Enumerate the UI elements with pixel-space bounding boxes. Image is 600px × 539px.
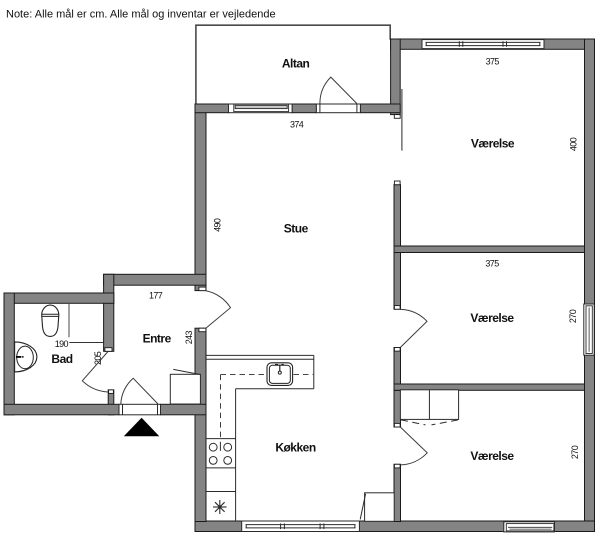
svg-text:190: 190 [55,339,69,349]
svg-text:Værelse: Værelse [470,449,514,463]
svg-text:Entre: Entre [143,332,172,346]
svg-text:270: 270 [568,309,578,323]
svg-text:375: 375 [486,57,500,67]
svg-text:375: 375 [485,259,499,269]
svg-text:270: 270 [570,445,580,459]
svg-text:Værelse: Værelse [470,311,514,325]
svg-text:Note: Alle mål er cm. Alle mål: Note: Alle mål er cm. Alle mål og invent… [6,8,276,20]
svg-text:Altan: Altan [282,56,310,70]
svg-text:400: 400 [569,137,579,151]
svg-text:177: 177 [149,291,163,301]
svg-text:Stue: Stue [284,222,309,236]
svg-text:Køkken: Køkken [275,441,316,455]
svg-text:Værelse: Værelse [471,137,515,151]
svg-text:490: 490 [212,218,222,232]
svg-text:Bad: Bad [51,352,72,366]
svg-text:374: 374 [290,120,304,130]
svg-text:243: 243 [184,330,194,344]
svg-text:205: 205 [93,351,103,365]
